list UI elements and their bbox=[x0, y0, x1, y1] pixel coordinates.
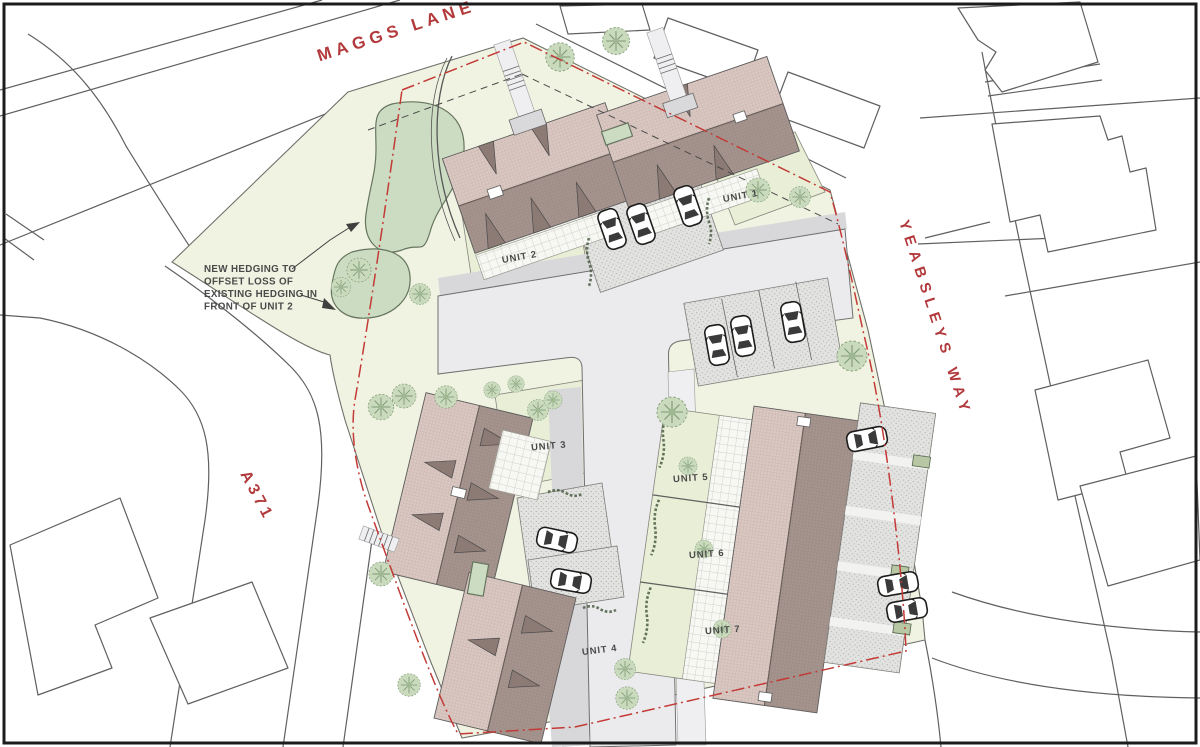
tree-icon bbox=[331, 277, 351, 297]
annotation-line: FRONT OF UNIT 2 bbox=[204, 302, 293, 313]
annotation-line: EXISTING HEDGING IN bbox=[204, 289, 317, 300]
tree-icon bbox=[484, 382, 501, 399]
tree-icon bbox=[790, 187, 811, 208]
tree-icon bbox=[435, 386, 458, 409]
tree-icon bbox=[398, 674, 421, 697]
annotation-line: OFFSET LOSS OF bbox=[204, 277, 293, 288]
terrace-units-5-7 bbox=[626, 376, 941, 724]
tree-icon bbox=[369, 562, 393, 586]
tree-icon bbox=[615, 659, 636, 680]
tree-icon bbox=[410, 284, 431, 305]
tree-icon bbox=[347, 258, 371, 282]
tree-icon bbox=[837, 341, 867, 371]
tree-icon bbox=[508, 376, 525, 393]
tree-icon bbox=[368, 394, 394, 420]
annotation-line: NEW HEDGING TO bbox=[204, 264, 296, 275]
site-plan-page: MAGGS LANE YEABSLEYS WAY A371 NEW HEDGIN… bbox=[0, 0, 1200, 747]
site-plan-drawing: MAGGS LANE YEABSLEYS WAY A371 NEW HEDGIN… bbox=[0, 0, 1200, 747]
tree-icon bbox=[657, 397, 687, 427]
tree-icon bbox=[546, 43, 575, 72]
tree-icon bbox=[392, 384, 416, 408]
tree-icon bbox=[603, 28, 630, 55]
tree-icon bbox=[616, 687, 639, 710]
tree-icon bbox=[544, 391, 562, 409]
